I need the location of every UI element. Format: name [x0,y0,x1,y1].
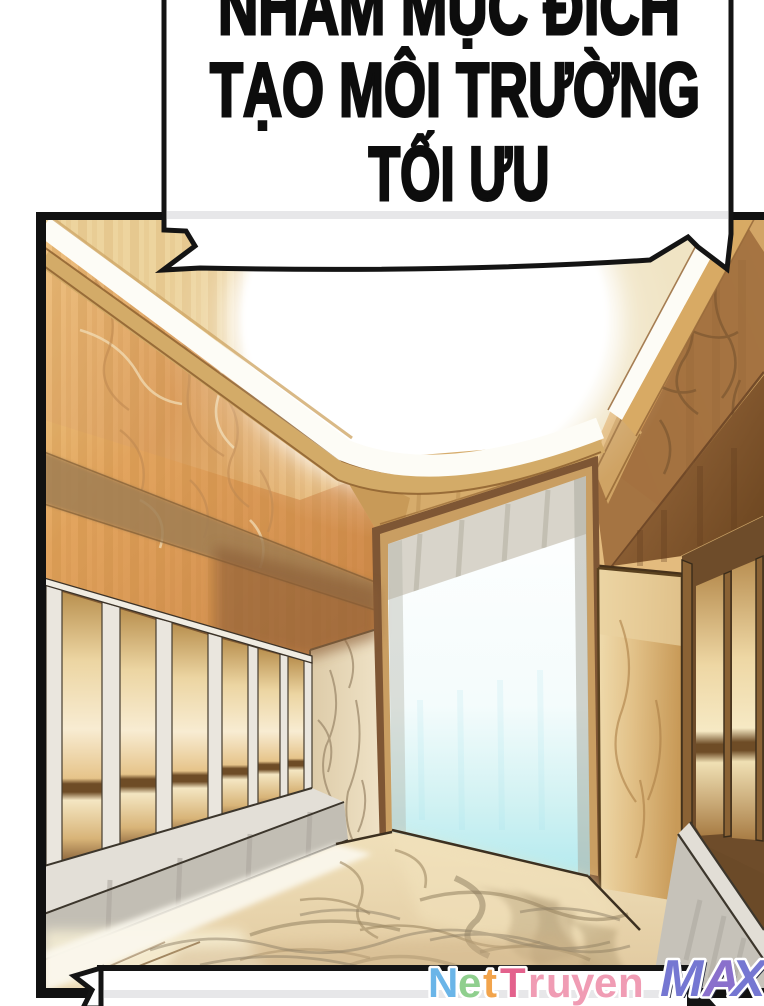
svg-text:TẠO MÔI TRƯỜNG: TẠO MÔI TRƯỜNG [210,48,700,133]
svg-text:n: n [618,959,644,1006]
svg-text:NHẰM MỤC ĐÍCH: NHẰM MỤC ĐÍCH [218,0,680,51]
svg-text:y: y [571,959,595,1006]
svg-text:t: t [483,959,497,1006]
svg-text:T: T [500,959,526,1006]
svg-text:X: X [728,950,764,1006]
svg-text:e: e [594,959,617,1006]
svg-text:u: u [546,959,572,1006]
svg-text:r: r [528,959,544,1006]
svg-text:TỐI ƯU: TỐI ƯU [369,132,550,217]
svg-text:e: e [458,959,481,1006]
svg-text:N: N [428,959,458,1006]
svg-text:M: M [660,950,705,1006]
